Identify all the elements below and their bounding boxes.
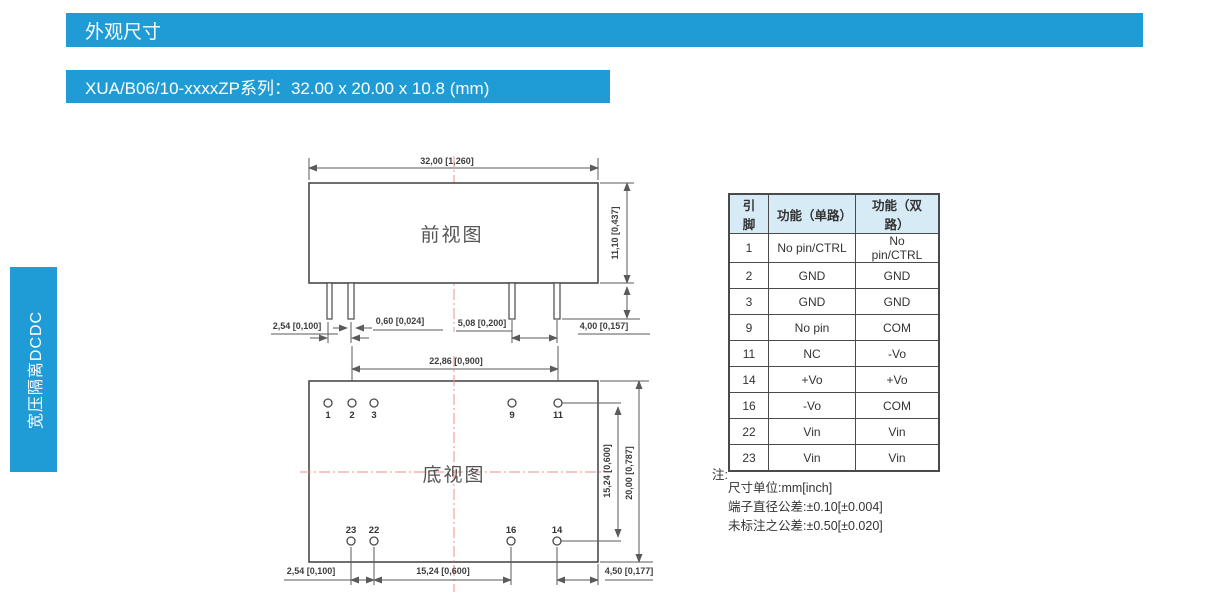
cell-single: GND: [769, 289, 856, 315]
cell-single: Vin: [769, 419, 856, 445]
pin-number: 3: [371, 410, 376, 421]
bottom-dim-row-span: 15,24 [0,600]: [602, 444, 612, 498]
front-dim-pin-pitch: 2,54 [0,100]: [273, 321, 322, 331]
pin-hole: [370, 399, 378, 407]
pin-hole: [554, 399, 562, 407]
table-row: 1 No pin/CTRL No pin/CTRL: [729, 234, 939, 263]
cell-pin: 11: [729, 341, 769, 367]
cell-pin: 3: [729, 289, 769, 315]
pin-hole: [553, 537, 561, 545]
pin-hole: [507, 537, 515, 545]
table-row: 9 No pin COM: [729, 315, 939, 341]
datasheet-page: 外观尺寸 XUA/B06/10-xxxxZP系列：32.00 x 20.00 x…: [0, 0, 1208, 610]
table-row: 22 Vin Vin: [729, 419, 939, 445]
pin-hole: [508, 399, 516, 407]
pin-function-table: 引脚 功能（单路） 功能（双路） 1 No pin/CTRL No pin/CT…: [728, 193, 940, 472]
table-row: 2 GND GND: [729, 263, 939, 289]
pin-hole: [370, 537, 378, 545]
bottom-dim-pin-group: 15,24 [0,600]: [416, 566, 470, 576]
table-row: 16 -Vo COM: [729, 393, 939, 419]
cell-single: GND: [769, 263, 856, 289]
bottom-view-label: 底视图: [422, 464, 485, 486]
bottom-dim-pin-span: 22,86 [0,900]: [429, 356, 483, 366]
pin-number: 23: [346, 525, 357, 536]
dimension-drawing: 32,00 [1,260] 前视图 11,10 [0,437] 4,00 [0,…: [0, 0, 1208, 610]
cell-pin: 2: [729, 263, 769, 289]
header-function-single: 功能（单路）: [769, 194, 856, 234]
pin-number: 9: [509, 410, 514, 421]
cell-pin: 9: [729, 315, 769, 341]
bottom-dim-depth: 20,00 [0,787]: [624, 446, 634, 500]
cell-dual: No pin/CTRL: [856, 234, 940, 263]
cell-single: -Vo: [769, 393, 856, 419]
cell-dual: COM: [856, 393, 940, 419]
note-line-pin-tolerance: 端子直径公差:±0.10[±0.004]: [728, 498, 883, 517]
front-dim-pin-length: 4,00 [0,157]: [580, 321, 629, 331]
pin-hole: [324, 399, 332, 407]
front-dim-height: 11,10 [0,437]: [610, 206, 620, 259]
front-dim-width: 32,00 [1,260]: [420, 156, 474, 166]
pin-number: 1: [325, 410, 331, 421]
cell-dual: +Vo: [856, 367, 940, 393]
pin-number: 14: [552, 525, 563, 536]
pin-number: 22: [369, 525, 380, 536]
bottom-dim-edge-offset: 4,50 [0,177]: [605, 566, 654, 576]
note-line-units: 尺寸单位:mm[inch]: [728, 479, 883, 498]
note-line-general-tolerance: 未标注之公差:±0.50[±0.020]: [728, 517, 883, 536]
cell-single: No pin: [769, 315, 856, 341]
bottom-dim-pin-pitch: 2,54 [0,100]: [287, 566, 336, 576]
header-function-dual: 功能（双路）: [856, 194, 940, 234]
bottom-view: 22,86 [0,900] 底视图 1 2 3 9 11 23 22: [284, 346, 653, 592]
front-dim-pin-width: 0,60 [0,024]: [376, 316, 425, 326]
cell-pin: 14: [729, 367, 769, 393]
pin-hole: [347, 537, 355, 545]
front-view-label: 前视图: [420, 224, 483, 246]
front-view: 32,00 [1,260] 前视图 11,10 [0,437] 4,00 [0,…: [271, 156, 650, 343]
cell-dual: GND: [856, 289, 940, 315]
notes-block: 注: 尺寸单位:mm[inch] 端子直径公差:±0.10[±0.004] 未标…: [712, 464, 883, 536]
cell-dual: GND: [856, 263, 940, 289]
front-pin: [554, 283, 560, 319]
pin-number: 2: [349, 410, 354, 421]
front-dim-pin-spacing-right: 5,08 [0,200]: [458, 318, 507, 328]
front-pin: [327, 283, 332, 319]
cell-single: No pin/CTRL: [769, 234, 856, 263]
cell-pin: 1: [729, 234, 769, 263]
pin-number: 11: [553, 410, 564, 421]
pin-hole: [348, 399, 356, 407]
cell-dual: COM: [856, 315, 940, 341]
table-header-row: 引脚 功能（单路） 功能（双路）: [729, 194, 939, 234]
header-pin: 引脚: [729, 194, 769, 234]
cell-dual: -Vo: [856, 341, 940, 367]
cell-single: NC: [769, 341, 856, 367]
table-row: 14 +Vo +Vo: [729, 367, 939, 393]
cell-dual: Vin: [856, 419, 940, 445]
cell-single: +Vo: [769, 367, 856, 393]
cell-pin: 16: [729, 393, 769, 419]
table-row: 3 GND GND: [729, 289, 939, 315]
cell-pin: 22: [729, 419, 769, 445]
pin-number: 16: [506, 525, 517, 536]
front-pin: [509, 283, 515, 319]
front-pin: [348, 283, 354, 319]
table-row: 11 NC -Vo: [729, 341, 939, 367]
